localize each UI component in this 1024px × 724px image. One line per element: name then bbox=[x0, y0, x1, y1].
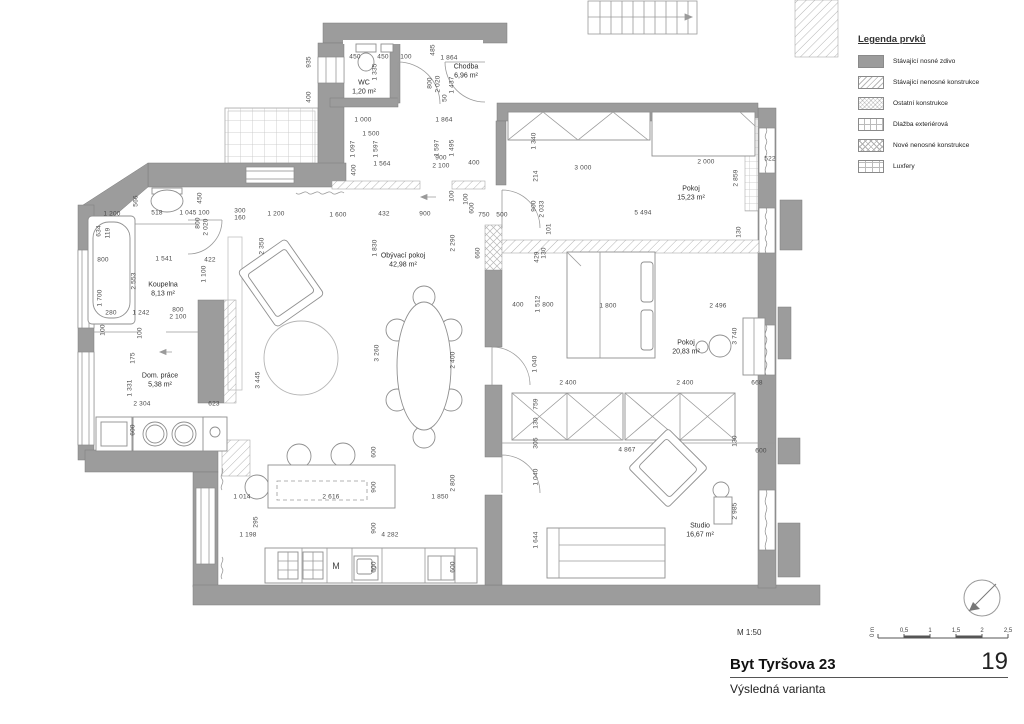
legend-item: Luxfery bbox=[858, 160, 1018, 173]
dim-label: 660 bbox=[475, 247, 482, 258]
dim-label: 634 bbox=[96, 225, 103, 236]
terrace-tiling bbox=[225, 108, 318, 166]
dim-label: 1 200 bbox=[267, 211, 284, 218]
dim-label: 450 bbox=[197, 192, 204, 203]
furniture bbox=[88, 44, 765, 583]
dim-label: 2 800 bbox=[450, 474, 457, 491]
dim-label: 500 bbox=[496, 212, 507, 219]
dim-label: 400 bbox=[512, 302, 523, 309]
drawing-title: Byt Tyršova 23 bbox=[730, 656, 836, 673]
walls bbox=[78, 23, 820, 605]
dim-label: 3 740 bbox=[732, 327, 739, 344]
room-label: Obývací pokoj42,98 m² bbox=[381, 252, 425, 270]
room-label: WC1,20 m² bbox=[352, 79, 376, 97]
room-label: Pokoj15,23 m² bbox=[677, 185, 705, 203]
dim-label: 1 800 bbox=[599, 303, 616, 310]
legend-item-label: Stávající nenosné konstrukce bbox=[893, 79, 979, 86]
dim-label: 1 097 bbox=[350, 140, 357, 157]
dim-label: 2 100 bbox=[169, 314, 186, 321]
dim-label: 1 495 bbox=[449, 139, 456, 156]
dim-label: 1 564 bbox=[373, 161, 390, 168]
dim-label: 1 500 bbox=[362, 131, 379, 138]
dim-label: 600 bbox=[130, 424, 137, 435]
dim-label: 2 400 bbox=[450, 351, 457, 368]
room-label: Chodba6,96 m² bbox=[454, 63, 479, 81]
dim-label: 1 331 bbox=[127, 379, 134, 396]
legend-item-label: Luxfery bbox=[893, 163, 915, 170]
dim-label: 101 bbox=[546, 223, 553, 234]
dim-label: 759 bbox=[533, 398, 540, 409]
diag-swatch-icon bbox=[858, 76, 884, 89]
dim-label: 2 859 bbox=[733, 169, 740, 186]
legend-item-label: Stávající nosné zdivo bbox=[893, 58, 955, 65]
dim-label: 1 200 bbox=[103, 211, 120, 218]
grid-swatch-icon bbox=[858, 118, 884, 131]
dim-label: 600 bbox=[469, 202, 476, 213]
dim-label: 1 644 bbox=[533, 531, 540, 548]
dim-label: 2 553 bbox=[131, 272, 138, 289]
dim-label: 100 bbox=[198, 210, 209, 217]
dim-label: 1 864 bbox=[435, 117, 452, 124]
dim-label: 300 bbox=[234, 208, 245, 215]
dim-label: 119 bbox=[105, 228, 112, 239]
dim-label: 485 bbox=[430, 44, 437, 55]
dim-label: 1 000 bbox=[354, 117, 371, 124]
legend-item-label: Nové nenosné konstrukce bbox=[893, 142, 969, 149]
room-label: Dom. práce5,38 m² bbox=[142, 372, 178, 390]
dim-label: 600 bbox=[371, 561, 378, 572]
dim-label: 900 bbox=[371, 522, 378, 533]
dim-label: 2 400 bbox=[559, 380, 576, 387]
stairs bbox=[588, 1, 697, 34]
scale-zero-label: 0 m bbox=[870, 627, 876, 637]
appliance-label: M bbox=[332, 561, 340, 571]
dim-label: 2 350 bbox=[259, 237, 266, 254]
dim-label: 800 bbox=[427, 77, 434, 88]
legend-item: Ostatní konstrukce bbox=[858, 97, 1018, 110]
dim-label: 400 bbox=[468, 160, 479, 167]
lux-swatch-icon bbox=[858, 160, 884, 173]
dim-label: 668 bbox=[751, 380, 762, 387]
dim-label: 2 616 bbox=[322, 494, 339, 501]
dim-label: 2 400 bbox=[676, 380, 693, 387]
drawing-subtitle: Výsledná varianta bbox=[730, 682, 825, 696]
dim-label: 100 bbox=[400, 54, 411, 61]
dim-label: 900 bbox=[531, 200, 538, 211]
dim-label: 2 304 bbox=[133, 401, 150, 408]
dim-label: 935 bbox=[306, 56, 313, 67]
diag2-swatch-icon bbox=[858, 97, 884, 110]
legend-item: Nové nenosné konstrukce bbox=[858, 139, 1018, 152]
dim-label: 1 040 bbox=[532, 355, 539, 372]
dim-label: 100 bbox=[449, 190, 456, 201]
dim-label: 5 494 bbox=[634, 210, 651, 217]
dim-label: 2 496 bbox=[709, 303, 726, 310]
dim-label: 900 bbox=[419, 211, 430, 218]
scale-label: 2,5 bbox=[1004, 628, 1012, 634]
dim-label: 1 830 bbox=[372, 239, 379, 256]
dim-label: 518 bbox=[151, 210, 162, 217]
dim-label: 4 282 bbox=[381, 532, 398, 539]
dim-label: 1 600 bbox=[329, 212, 346, 219]
scale-label: 0,5 bbox=[900, 628, 908, 634]
dim-label: 1 045 bbox=[179, 210, 196, 217]
scale-label: 1,5 bbox=[952, 628, 960, 634]
dim-label: 1 014 bbox=[233, 494, 250, 501]
dim-label: 2 020 bbox=[203, 218, 210, 235]
dim-label: 2 100 bbox=[432, 163, 449, 170]
dim-label: 450 bbox=[377, 54, 388, 61]
north-arrow-icon bbox=[964, 580, 1000, 616]
room-label: Studio16,67 m² bbox=[686, 522, 714, 540]
legend-item-label: Ostatní konstrukce bbox=[893, 100, 948, 107]
legend-item-label: Dlažba exteriérová bbox=[893, 121, 948, 128]
legend-item: Stávající nosné zdivo bbox=[858, 55, 1018, 68]
dim-label: 1 100 bbox=[201, 265, 208, 282]
legend-item: Stávající nenosné konstrukce bbox=[858, 76, 1018, 89]
title-divider bbox=[730, 677, 1008, 678]
dim-label: 130 bbox=[736, 226, 743, 237]
dim-label: 1 597 bbox=[373, 140, 380, 157]
dim-label: 280 bbox=[105, 310, 116, 317]
dim-label: 1 512 bbox=[535, 295, 542, 312]
dim-label: 1 242 bbox=[132, 310, 149, 317]
dim-label: 2 985 bbox=[732, 502, 739, 519]
dim-label: 1 864 bbox=[440, 55, 457, 62]
room-label: Pokoj20,83 m² bbox=[672, 339, 700, 357]
dim-label: 623 bbox=[208, 401, 219, 408]
dim-label: 175 bbox=[130, 352, 137, 363]
legend-item: Dlažba exteriérová bbox=[858, 118, 1018, 131]
dim-label: 130 bbox=[541, 247, 548, 258]
dim-label: 1 541 bbox=[155, 256, 172, 263]
floor-plan-page: 4504501004851 8649354001 3358002 0201 43… bbox=[0, 0, 1024, 724]
dim-label: 400 bbox=[351, 164, 358, 175]
dim-label: 566 bbox=[133, 195, 140, 206]
dim-label: 1 700 bbox=[97, 289, 104, 306]
dim-label: 4 867 bbox=[618, 447, 635, 454]
dim-label: 3 445 bbox=[255, 371, 262, 388]
scale-label: 1 bbox=[928, 628, 931, 634]
dim-label: 130 bbox=[732, 435, 739, 446]
dim-label: 1 198 bbox=[239, 532, 256, 539]
dim-label: 160 bbox=[234, 215, 245, 222]
scale-label: 2 bbox=[980, 628, 983, 634]
dim-label: 3 000 bbox=[574, 165, 591, 172]
dim-label: 600 bbox=[755, 448, 766, 455]
dim-label: 900 bbox=[435, 155, 446, 162]
scale-bar-labels: 0 m 0,511,522,5 bbox=[866, 622, 1016, 644]
cross-swatch-icon bbox=[858, 139, 884, 152]
solid-swatch-icon bbox=[858, 55, 884, 68]
scale-note: M 1:50 bbox=[737, 628, 761, 637]
dim-label: 100 bbox=[100, 324, 107, 335]
dim-label: 2 033 bbox=[539, 200, 546, 217]
dim-label: 400 bbox=[306, 91, 313, 102]
dim-label: 2 290 bbox=[450, 234, 457, 251]
dim-label: 600 bbox=[371, 446, 378, 457]
dim-label: 422 bbox=[204, 257, 215, 264]
dim-label: 1 340 bbox=[531, 132, 538, 149]
dim-label: 900 bbox=[371, 481, 378, 492]
dim-label: 432 bbox=[378, 211, 389, 218]
dim-label: 800 bbox=[97, 257, 108, 264]
dim-label: 600 bbox=[450, 561, 457, 572]
dim-label: 450 bbox=[349, 54, 360, 61]
dim-label: 800 bbox=[172, 307, 183, 314]
dim-label: 100 bbox=[137, 327, 144, 338]
dim-label: 295 bbox=[253, 516, 260, 527]
dim-label: 305 bbox=[533, 437, 540, 448]
dim-label: 50 bbox=[442, 94, 449, 102]
dim-label: 429 bbox=[534, 251, 541, 262]
dim-label: 750 bbox=[478, 212, 489, 219]
dim-label: 1 335 bbox=[372, 63, 379, 80]
dim-label: 3 260 bbox=[374, 344, 381, 361]
dim-label: 214 bbox=[533, 170, 540, 181]
dim-label: 800 bbox=[542, 302, 553, 309]
room-label: Koupelna8,13 m² bbox=[148, 281, 178, 299]
dim-label: 1 040 bbox=[533, 468, 540, 485]
dim-label: 522 bbox=[764, 156, 775, 163]
dim-label: 2 020 bbox=[435, 75, 442, 92]
dim-label: 800 bbox=[195, 217, 202, 228]
legend: Legenda prvků Stávající nosné zdivoStáva… bbox=[858, 34, 1018, 181]
dim-label: 1 850 bbox=[431, 494, 448, 501]
dim-label: 2 000 bbox=[697, 159, 714, 166]
legend-title: Legenda prvků bbox=[858, 34, 1018, 45]
dim-label: 130 bbox=[533, 417, 540, 428]
sheet-number: 19 bbox=[981, 648, 1008, 676]
